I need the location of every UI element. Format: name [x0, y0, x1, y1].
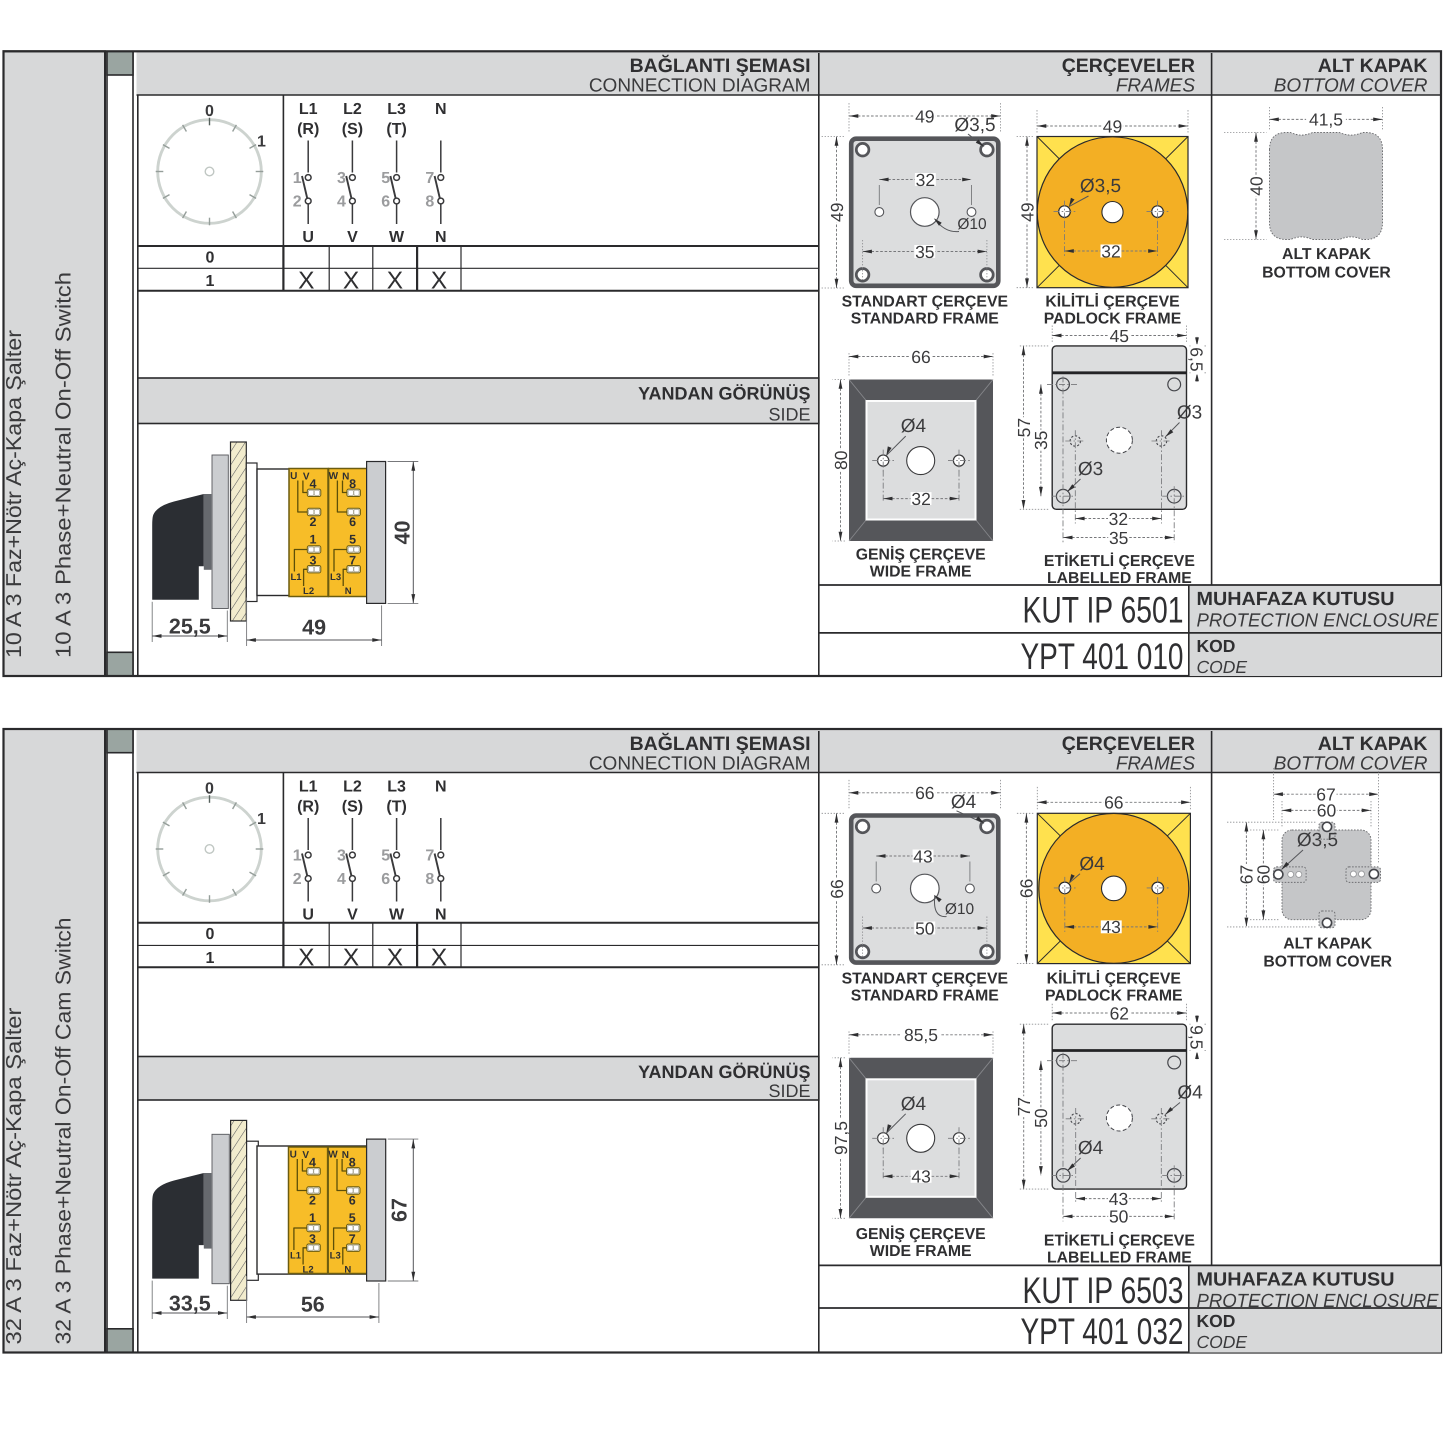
svg-text:60: 60 [1254, 865, 1274, 885]
svg-text:66: 66 [911, 347, 930, 367]
svg-text:41,5: 41,5 [1309, 110, 1343, 130]
svg-text:L2: L2 [343, 779, 362, 796]
svg-text:ALT KAPAK: ALT KAPAK [1318, 733, 1428, 755]
svg-text:49: 49 [827, 202, 847, 221]
svg-text:6: 6 [349, 515, 356, 529]
svg-text:3: 3 [337, 848, 346, 865]
svg-text:8: 8 [425, 194, 434, 211]
svg-text:49: 49 [915, 106, 934, 126]
svg-text:Ø4: Ø4 [1079, 854, 1105, 875]
svg-text:8: 8 [425, 871, 434, 888]
svg-text:1: 1 [257, 811, 266, 828]
svg-text:40: 40 [1246, 176, 1266, 196]
svg-text:1: 1 [293, 170, 302, 187]
svg-text:50: 50 [1031, 1108, 1051, 1128]
svg-text:2: 2 [293, 871, 302, 888]
svg-text:(R): (R) [297, 799, 319, 816]
svg-text:25,5: 25,5 [169, 615, 211, 639]
svg-text:YANDAN GÖRÜNÜŞ: YANDAN GÖRÜNÜŞ [638, 1062, 810, 1082]
svg-text:6: 6 [349, 1194, 356, 1208]
svg-text:Ø3,5: Ø3,5 [1297, 830, 1338, 851]
svg-text:L3: L3 [330, 572, 341, 583]
svg-text:(T): (T) [386, 799, 406, 816]
svg-text:ALT KAPAK: ALT KAPAK [1283, 936, 1373, 953]
svg-text:STANDARD FRAME: STANDARD FRAME [851, 987, 999, 1004]
svg-text:43: 43 [913, 846, 932, 866]
svg-text:KUT IP 6501: KUT IP 6501 [1023, 590, 1184, 631]
svg-text:ÇERÇEVELER: ÇERÇEVELER [1062, 55, 1195, 77]
svg-text:U: U [290, 471, 297, 482]
svg-text:32: 32 [916, 170, 935, 190]
svg-text:GENİŞ ÇERÇEVE: GENİŞ ÇERÇEVE [856, 1225, 986, 1243]
svg-text:KOD: KOD [1197, 636, 1236, 656]
svg-text:GENİŞ ÇERÇEVE: GENİŞ ÇERÇEVE [856, 546, 986, 564]
svg-text:V: V [347, 907, 358, 924]
svg-text:2: 2 [310, 515, 317, 529]
svg-text:35: 35 [1031, 431, 1051, 450]
svg-text:PADLOCK FRAME: PADLOCK FRAME [1045, 987, 1182, 1004]
svg-text:Ø3: Ø3 [1177, 403, 1202, 424]
svg-text:43: 43 [1101, 917, 1120, 937]
svg-text:32 A 3 Phase+Neutral On-Off Ca: 32 A 3 Phase+Neutral On-Off Cam Switch [52, 918, 76, 1345]
svg-text:1: 1 [309, 1211, 316, 1225]
svg-text:43: 43 [911, 1167, 930, 1187]
svg-text:N: N [344, 1265, 351, 1276]
svg-text:L3: L3 [330, 1251, 341, 1262]
svg-text:Ø10: Ø10 [957, 216, 987, 233]
svg-text:56: 56 [301, 1293, 325, 1317]
svg-text:X: X [343, 267, 359, 294]
svg-text:67: 67 [388, 1198, 412, 1222]
svg-text:FRAMES: FRAMES [1116, 754, 1196, 775]
svg-text:50: 50 [1109, 1207, 1129, 1227]
svg-text:49: 49 [302, 616, 326, 640]
svg-text:WIDE FRAME: WIDE FRAME [870, 564, 972, 581]
svg-text:(S): (S) [342, 799, 363, 816]
svg-text:ETİKETLİ ÇERÇEVE: ETİKETLİ ÇERÇEVE [1044, 1232, 1195, 1250]
svg-text:X: X [431, 267, 447, 294]
svg-text:STANDART ÇERÇEVE: STANDART ÇERÇEVE [842, 970, 1008, 987]
svg-text:SIDE: SIDE [768, 405, 810, 425]
svg-text:STANDARD FRAME: STANDARD FRAME [851, 311, 999, 328]
svg-text:LABELLED FRAME: LABELLED FRAME [1047, 1250, 1192, 1267]
svg-text:CODE: CODE [1197, 657, 1248, 677]
svg-text:W: W [329, 471, 339, 482]
svg-text:W: W [389, 229, 405, 246]
svg-text:1: 1 [206, 273, 215, 290]
svg-text:BAĞLANTI ŞEMASI: BAĞLANTI ŞEMASI [630, 54, 811, 77]
svg-text:STANDART ÇERÇEVE: STANDART ÇERÇEVE [842, 294, 1008, 311]
svg-text:1: 1 [257, 134, 266, 151]
svg-text:L3: L3 [387, 779, 406, 796]
svg-text:PROTECTION ENCLOSURE: PROTECTION ENCLOSURE [1197, 611, 1439, 632]
svg-text:62: 62 [1110, 1003, 1129, 1023]
svg-text:YPT 401 010: YPT 401 010 [1021, 636, 1184, 677]
svg-text:4: 4 [337, 871, 346, 888]
svg-text:(S): (S) [342, 121, 363, 138]
svg-text:BOTTOM COVER: BOTTOM COVER [1263, 954, 1392, 971]
svg-text:KİLİTLİ ÇERÇEVE: KİLİTLİ ÇERÇEVE [1045, 293, 1179, 311]
svg-text:60: 60 [1317, 801, 1337, 821]
svg-text:CONNECTION DIAGRAM: CONNECTION DIAGRAM [589, 76, 811, 97]
svg-text:4: 4 [337, 194, 346, 211]
svg-text:BOTTOM COVER: BOTTOM COVER [1274, 76, 1428, 97]
svg-text:1: 1 [293, 848, 302, 865]
svg-text:5: 5 [381, 170, 390, 187]
svg-text:L1: L1 [299, 101, 318, 118]
svg-text:Ø3: Ø3 [1078, 459, 1103, 480]
svg-text:ÇERÇEVELER: ÇERÇEVELER [1062, 733, 1195, 755]
svg-text:32 A 3 Faz+Nötr Aç-Kapa Şalter: 32 A 3 Faz+Nötr Aç-Kapa Şalter [2, 1008, 26, 1345]
svg-text:L1: L1 [299, 779, 318, 796]
svg-text:CONNECTION DIAGRAM: CONNECTION DIAGRAM [589, 754, 811, 775]
svg-text:66: 66 [827, 879, 847, 898]
svg-text:7: 7 [425, 170, 434, 187]
svg-text:5: 5 [349, 533, 356, 547]
svg-text:80: 80 [831, 450, 851, 470]
svg-text:L2: L2 [303, 1265, 314, 1276]
svg-text:L2: L2 [303, 586, 314, 597]
svg-text:Ø4: Ø4 [901, 416, 927, 437]
svg-text:ALT KAPAK: ALT KAPAK [1282, 246, 1372, 263]
svg-text:0: 0 [206, 926, 215, 943]
svg-text:BAĞLANTI ŞEMASI: BAĞLANTI ŞEMASI [630, 732, 811, 755]
svg-text:W: W [328, 1150, 338, 1161]
svg-text:50: 50 [915, 918, 935, 938]
svg-text:U: U [302, 907, 314, 924]
svg-text:10 A 3 Faz+Nötr Aç-Kapa Şalter: 10 A 3 Faz+Nötr Aç-Kapa Şalter [2, 330, 26, 658]
svg-text:3: 3 [337, 170, 346, 187]
svg-text:KUT IP 6503: KUT IP 6503 [1023, 1270, 1184, 1311]
svg-text:X: X [298, 944, 314, 971]
svg-text:40: 40 [391, 521, 415, 545]
svg-text:2: 2 [293, 194, 302, 211]
svg-text:WIDE FRAME: WIDE FRAME [870, 1243, 972, 1260]
svg-text:X: X [343, 944, 359, 971]
svg-text:L1: L1 [290, 572, 302, 583]
svg-text:N: N [435, 229, 447, 246]
svg-text:(T): (T) [386, 121, 406, 138]
svg-text:49: 49 [1103, 116, 1122, 136]
svg-text:0: 0 [205, 103, 214, 120]
svg-text:1: 1 [206, 950, 215, 967]
svg-text:X: X [431, 944, 447, 971]
svg-text:FRAMES: FRAMES [1116, 76, 1196, 97]
svg-text:6: 6 [381, 194, 390, 211]
svg-text:10 A 3 Phase+Neutral On-Off Sw: 10 A 3 Phase+Neutral On-Off Switch [52, 272, 76, 658]
svg-text:Ø4: Ø4 [1078, 1138, 1104, 1159]
svg-text:X: X [387, 944, 403, 971]
svg-text:0: 0 [206, 250, 215, 267]
svg-text:Ø4: Ø4 [901, 1094, 927, 1115]
svg-text:Ø10: Ø10 [945, 901, 975, 918]
svg-text:66: 66 [915, 783, 934, 803]
svg-text:Ø4: Ø4 [1177, 1083, 1203, 1104]
svg-text:32: 32 [1101, 241, 1120, 261]
svg-text:L3: L3 [387, 101, 406, 118]
svg-text:85,5: 85,5 [904, 1025, 938, 1045]
svg-text:U: U [302, 229, 314, 246]
svg-text:(R): (R) [297, 121, 319, 138]
svg-text:49: 49 [1017, 202, 1037, 221]
svg-text:ETİKETLİ ÇERÇEVE: ETİKETLİ ÇERÇEVE [1044, 552, 1195, 570]
svg-text:5: 5 [349, 1211, 356, 1225]
svg-text:CODE: CODE [1197, 1332, 1248, 1352]
svg-text:35: 35 [1109, 528, 1128, 548]
svg-text:66: 66 [1104, 793, 1123, 813]
svg-text:45: 45 [1110, 326, 1129, 346]
svg-text:7: 7 [425, 848, 434, 865]
svg-text:N: N [435, 779, 447, 796]
svg-text:ALT KAPAK: ALT KAPAK [1318, 55, 1428, 77]
svg-text:2: 2 [309, 1194, 316, 1208]
svg-text:BOTTOM COVER: BOTTOM COVER [1274, 754, 1428, 775]
svg-text:66: 66 [1017, 879, 1037, 898]
svg-text:L2: L2 [343, 101, 362, 118]
svg-text:5: 5 [381, 848, 390, 865]
svg-text:N: N [435, 907, 447, 924]
svg-text:BOTTOM COVER: BOTTOM COVER [1262, 265, 1391, 282]
svg-text:35: 35 [915, 242, 934, 262]
svg-text:X: X [298, 267, 314, 294]
svg-text:6: 6 [381, 871, 390, 888]
svg-text:Ø3,5: Ø3,5 [954, 115, 995, 136]
svg-text:PROTECTION ENCLOSURE: PROTECTION ENCLOSURE [1197, 1291, 1439, 1312]
svg-text:SIDE: SIDE [768, 1081, 810, 1101]
svg-text:32: 32 [911, 489, 930, 509]
svg-text:X: X [387, 267, 403, 294]
svg-text:YANDAN GÖRÜNÜŞ: YANDAN GÖRÜNÜŞ [638, 384, 810, 404]
svg-text:6,5: 6,5 [1187, 347, 1207, 371]
svg-text:32: 32 [1109, 509, 1128, 529]
svg-text:YPT 401 032: YPT 401 032 [1021, 1311, 1184, 1352]
svg-text:KOD: KOD [1197, 1311, 1236, 1331]
svg-text:W: W [389, 907, 405, 924]
svg-text:0: 0 [205, 781, 214, 798]
svg-text:KİLİTLİ ÇERÇEVE: KİLİTLİ ÇERÇEVE [1047, 969, 1181, 987]
svg-text:97,5: 97,5 [831, 1121, 851, 1155]
svg-text:N: N [345, 586, 352, 597]
svg-text:MUHAFAZA KUTUSU: MUHAFAZA KUTUSU [1197, 1269, 1395, 1290]
svg-text:N: N [435, 101, 447, 118]
svg-text:MUHAFAZA KUTUSU: MUHAFAZA KUTUSU [1197, 589, 1395, 610]
svg-text:1: 1 [310, 533, 317, 547]
svg-text:L1: L1 [290, 1251, 302, 1262]
svg-text:33,5: 33,5 [169, 1292, 211, 1316]
svg-text:U: U [290, 1150, 297, 1161]
svg-text:V: V [347, 229, 358, 246]
svg-text:9,5: 9,5 [1187, 1025, 1207, 1049]
svg-text:Ø3,5: Ø3,5 [1080, 176, 1121, 197]
svg-text:Ø4: Ø4 [951, 792, 977, 813]
